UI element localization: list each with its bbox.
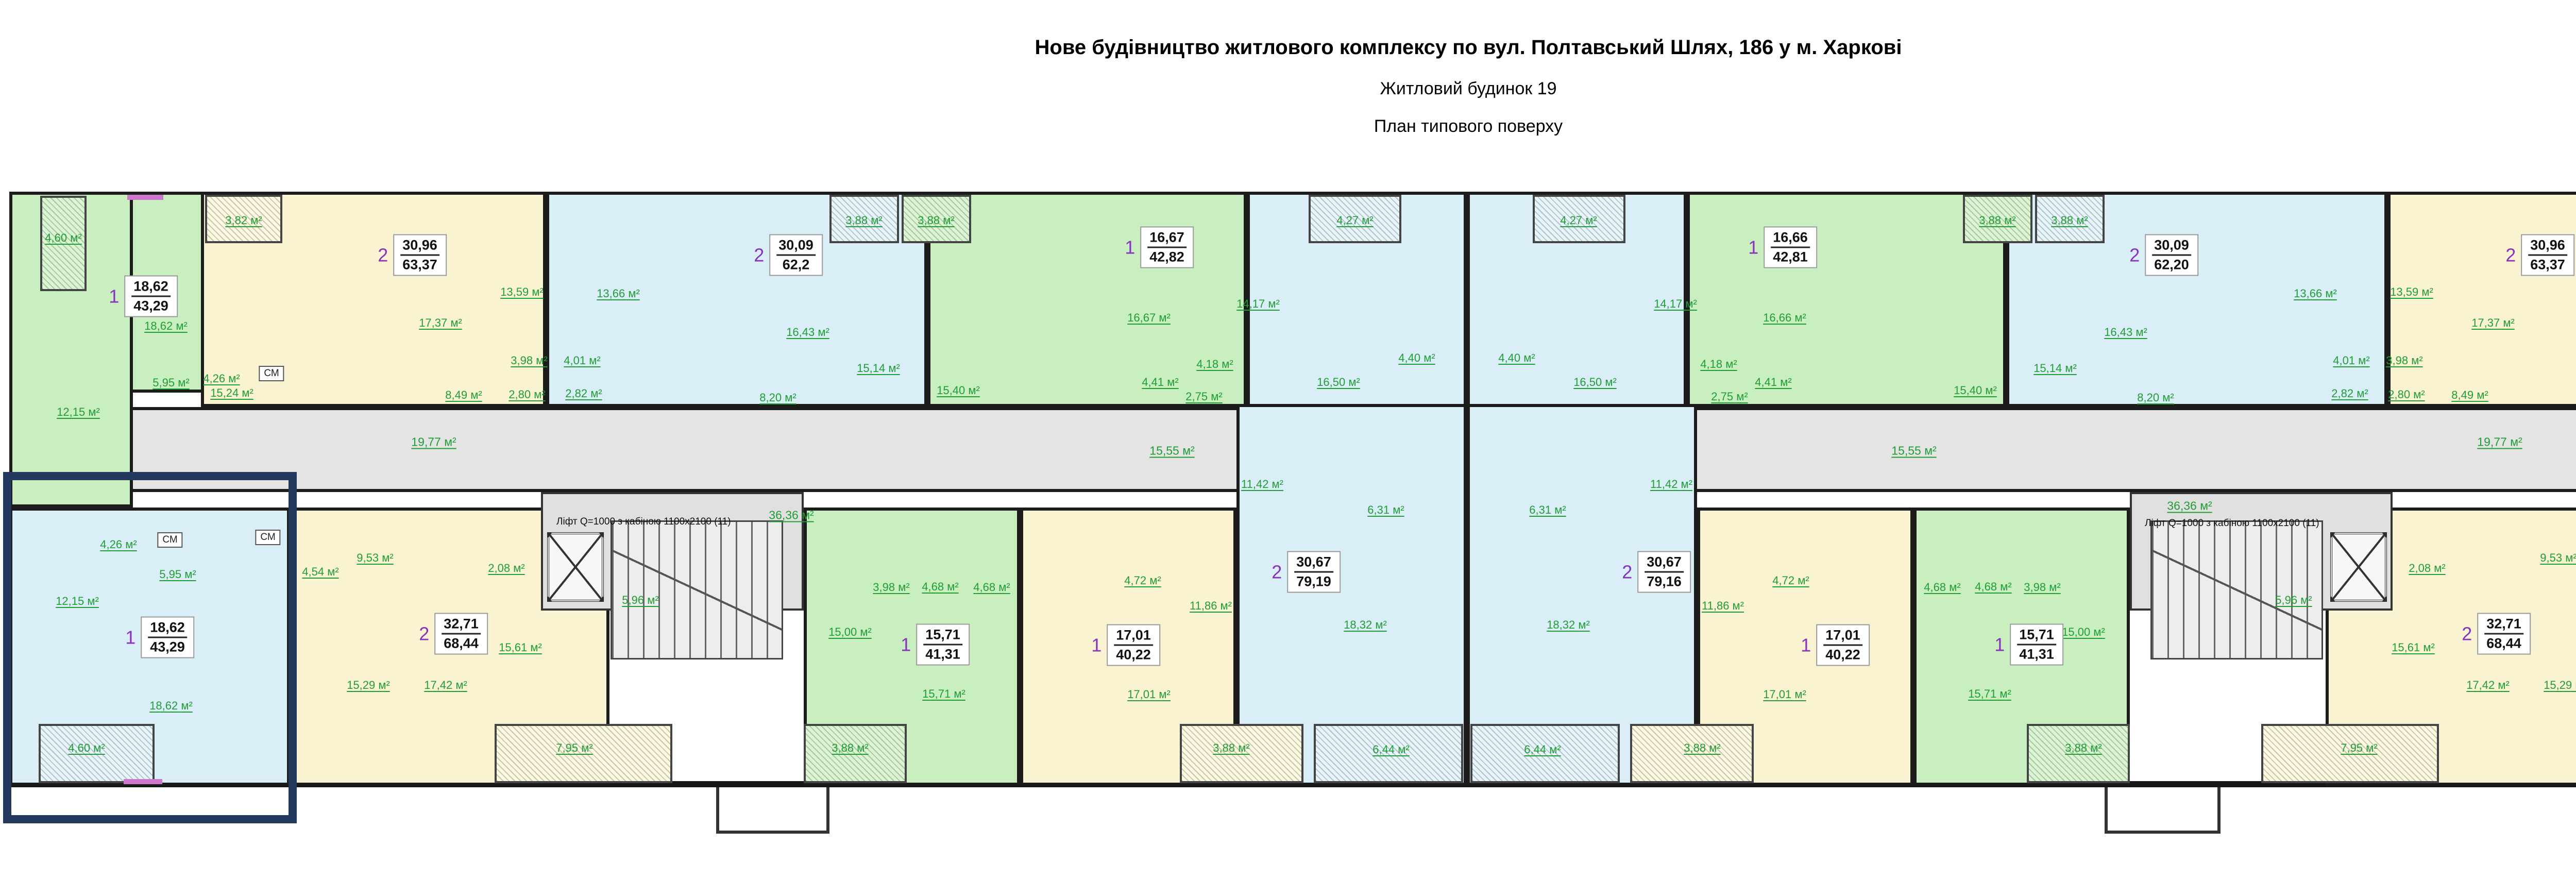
apartment-tag-bottom-left-2: 232,7168,44 <box>419 613 488 655</box>
room-area-label: 9,53 м² <box>2540 551 2576 565</box>
room-area-label: 8,20 м² <box>2137 391 2174 404</box>
room-area-label: 6,31 м² <box>1367 503 1404 517</box>
room-area-label: 17,01 м² <box>1127 688 1171 701</box>
room-area-label: 4,18 м² <box>1196 358 1233 371</box>
living-area-value: 18,62 <box>131 279 171 297</box>
corridor-area-label: 19,77 м² <box>2477 435 2522 449</box>
apartment-area-box: 16,6742,82 <box>1140 227 1194 268</box>
apartment-area-box: 30,9663,37 <box>393 234 447 276</box>
apartment-area-box: 30,6779,19 <box>1287 551 1341 593</box>
room-area-label: 15,14 м² <box>857 362 900 375</box>
apartment-number: 2 <box>754 244 764 266</box>
core-left-stairs-icon <box>611 520 783 660</box>
room-area-label: 4,40 м² <box>1498 351 1535 365</box>
room-area-label: 15,29 м² <box>347 679 390 692</box>
apartment-area-box: 18,6243,29 <box>124 276 178 317</box>
room-area-label: 17,37 м² <box>419 316 462 330</box>
apartment-number: 2 <box>2129 244 2140 266</box>
corridor <box>1697 407 2576 492</box>
apartment-number: 2 <box>2505 244 2516 266</box>
room-area-label: 9,53 м² <box>357 551 393 565</box>
total-area-value: 43,29 <box>131 297 171 314</box>
total-area-value: 41,31 <box>2017 646 2056 663</box>
total-area-value: 68,44 <box>442 635 481 652</box>
corridor-area-label: 36,36 м² <box>2167 499 2212 513</box>
apartment-area-box: 30,9663,37 <box>2521 234 2574 276</box>
living-area-value: 30,09 <box>2152 238 2191 256</box>
room-area-label: 3,88 м² <box>845 214 882 227</box>
room-area-label: 13,66 м² <box>597 287 640 300</box>
living-area-value: 16,66 <box>1771 230 1810 248</box>
room-area-label: 8,49 м² <box>2451 388 2488 402</box>
apartment-tag-bottom-right-4: 117,0140,22 <box>1801 624 1870 666</box>
room-area-label: 5,95 м² <box>152 376 189 390</box>
room-area-label: 15,24 м² <box>210 386 253 400</box>
room-area-label: 11,42 м² <box>1241 478 1283 491</box>
living-area-value: 30,67 <box>1645 554 1684 573</box>
room-area-label: 4,26 м² <box>203 372 240 385</box>
apartment-area-box: 30,0962,2 <box>769 234 823 276</box>
accent-window-0 <box>127 195 163 200</box>
total-area-value: 68,44 <box>2484 635 2523 652</box>
total-area-value: 79,16 <box>1645 573 1684 590</box>
apartment-tag-bottom-left-4: 117,0140,22 <box>1091 624 1160 666</box>
room-area-label: 4,68 м² <box>1975 580 2011 594</box>
room-area-label: 6,44 м² <box>1372 743 1409 756</box>
apartment-tag-bottom-left-3: 115,7141,31 <box>901 624 970 666</box>
room-area-label: 8,49 м² <box>445 388 482 402</box>
room-area-label: 8,20 м² <box>759 391 796 404</box>
apartment-area-box: 15,7141,31 <box>916 624 970 666</box>
room-area-label: 18,32 м² <box>1547 618 1590 632</box>
room-area-label: 3,88 м² <box>1213 741 1249 755</box>
room-area-label: 15,71 м² <box>922 687 965 701</box>
room-area-label: 4,01 м² <box>2333 354 2369 367</box>
room-area-label: 15,00 м² <box>2062 625 2105 639</box>
apartment-number: 2 <box>378 244 388 266</box>
room-area-label: 2,75 м² <box>1711 390 1748 403</box>
total-area-value: 79,19 <box>1294 573 1333 590</box>
core-right-stairs-icon <box>2150 520 2323 660</box>
room-area-label: 15,40 м² <box>937 384 980 397</box>
living-area-value: 32,71 <box>2484 616 2523 635</box>
room-area-label: 2,82 м² <box>2331 387 2368 400</box>
room-area-label: 3,88 м² <box>2051 214 2088 227</box>
total-area-value: 40,22 <box>1823 646 1862 663</box>
core-right-lift-icon <box>2330 532 2387 602</box>
closet-label: СМ <box>259 366 284 381</box>
room-area-label: 16,67 м² <box>1127 311 1171 325</box>
room-area-label: 7,95 м² <box>2341 741 2377 755</box>
floor-plan-canvas: 5,96 м²Ліфт Q=1000 з кабіною 1100х2100 (… <box>0 0 2576 896</box>
room-area-label: 6,31 м² <box>1529 503 1566 517</box>
room-area-label: 2,08 м² <box>2409 562 2445 575</box>
room-area-label: 4,54 м² <box>302 565 338 579</box>
room-area-label: 15,29 м² <box>2544 679 2576 692</box>
room-area-label: 4,72 м² <box>1124 574 1161 587</box>
apartment-number: 1 <box>1125 236 1135 258</box>
apartment-tag-top-left-4: 116,6742,82 <box>1125 227 1194 268</box>
living-area-value: 17,01 <box>1823 628 1862 646</box>
apartment-tag-top-left-end: 118,6243,29 <box>109 276 178 317</box>
room-area-label: 2,08 м² <box>488 562 524 575</box>
core-right-lobby-area-label: 5,96 м² <box>2275 594 2312 607</box>
room-area-label: 2,75 м² <box>1185 390 1222 403</box>
highlighted-apartment-box <box>3 472 297 823</box>
room-area-label: 14,17 м² <box>1654 297 1697 311</box>
room-area-label: 4,68 м² <box>922 580 958 594</box>
living-area-value: 15,71 <box>923 627 962 646</box>
apartment-tag-bottom-right-3: 115,7141,31 <box>1994 624 2063 666</box>
room-area-label: 4,68 м² <box>973 581 1010 594</box>
apartment-area-box: 30,6779,16 <box>1637 551 1691 593</box>
room-area-label: 3,88 м² <box>1979 214 2015 227</box>
living-area-value: 30,96 <box>400 238 439 256</box>
floor-plan-page: { "title": { "line1": "Нове будівництво … <box>0 0 2576 896</box>
corridor-area-label: 15,55 м² <box>1149 444 1194 458</box>
apartment-tag-top-right-4: 116,6642,81 <box>1748 227 1817 268</box>
room-area-label: 15,40 м² <box>1954 384 1997 397</box>
room-area-label: 16,50 м² <box>1573 376 1617 389</box>
room-area-label: 11,42 м² <box>1650 478 1692 491</box>
room-area-label: 7,95 м² <box>556 741 592 755</box>
room-area-label: 3,88 м² <box>832 741 868 755</box>
apartment-unit-top-left-4 <box>927 192 1247 407</box>
living-area-value: 15,71 <box>2017 627 2056 646</box>
room-area-label: 3,98 м² <box>2386 354 2422 367</box>
living-area-value: 30,96 <box>2528 238 2567 256</box>
living-area-value: 32,71 <box>442 616 481 635</box>
room-area-label: 2,82 м² <box>565 387 602 400</box>
room-area-label: 4,18 м² <box>1700 358 1737 371</box>
entrance-porch-1 <box>2105 787 2221 834</box>
apartment-number: 2 <box>419 623 429 645</box>
living-area-value: 17,01 <box>1114 628 1153 646</box>
apartment-tag-top-right-2: 230,9663,37 <box>2505 234 2574 276</box>
room-area-label: 3,88 м² <box>2065 741 2102 755</box>
total-area-value: 62,20 <box>2152 256 2191 273</box>
room-area-label: 4,40 м² <box>1398 351 1435 365</box>
total-area-value: 41,31 <box>923 646 962 663</box>
living-area-value: 30,67 <box>1294 554 1333 573</box>
room-area-label: 17,01 м² <box>1763 688 1806 701</box>
total-area-value: 62,2 <box>776 256 816 273</box>
apartment-number: 2 <box>1622 561 1632 583</box>
corridor <box>131 407 1236 492</box>
total-area-value: 63,37 <box>400 256 439 273</box>
entrance-porch-0 <box>716 787 829 834</box>
apartment-area-box: 32,7168,44 <box>434 613 488 655</box>
apartment-area-box: 32,7168,44 <box>2477 613 2531 655</box>
room-area-label: 13,59 м² <box>500 285 544 299</box>
lift-spec-label: Ліфт Q=1000 з кабіною 1100х2100 (11) <box>2145 518 2319 529</box>
room-area-label: 16,50 м² <box>1317 376 1360 389</box>
room-area-label: 6,44 м² <box>1524 743 1561 756</box>
room-area-label: 4,27 м² <box>1336 214 1373 227</box>
lift-spec-label: Ліфт Q=1000 з кабіною 1100х2100 (11) <box>556 516 731 528</box>
room-area-label: 14,17 м² <box>1236 297 1280 311</box>
living-area-value: 30,09 <box>776 238 816 256</box>
apartment-unit-top-right-2 <box>2387 192 2576 407</box>
room-area-label: 15,61 м² <box>2392 641 2435 654</box>
apartment-unit-top-right-4 <box>1687 192 2006 407</box>
room-area-label: 4,41 м² <box>1142 376 1178 389</box>
apartment-tag-bottom-right-2: 232,7168,44 <box>2462 613 2531 655</box>
room-area-label: 15,00 м² <box>828 625 872 639</box>
room-area-label: 18,32 м² <box>1344 618 1387 632</box>
room-area-label: 15,14 м² <box>2033 362 2077 375</box>
room-area-label: 2,80 м² <box>2388 388 2425 401</box>
room-area-label: 3,82 м² <box>225 214 262 227</box>
core-left-lift-icon <box>547 532 604 602</box>
apartment-number: 1 <box>1994 634 2005 655</box>
room-area-label: 13,66 м² <box>2294 287 2337 300</box>
room-area-label: 12,15 м² <box>57 405 100 419</box>
room-area-label: 18,62 м² <box>144 319 188 333</box>
total-area-value: 42,81 <box>1771 248 1810 265</box>
living-area-value: 16,67 <box>1147 230 1187 248</box>
room-area-label: 3,98 м² <box>2024 581 2060 594</box>
room-area-label: 17,37 м² <box>2471 316 2515 330</box>
room-area-label: 11,86 м² <box>1702 599 1744 613</box>
apartment-tag-top-right-3: 230,0962,20 <box>2129 234 2198 276</box>
apartment-number: 2 <box>2462 623 2472 645</box>
total-area-value: 42,82 <box>1147 248 1187 265</box>
room-area-label: 13,59 м² <box>2390 285 2433 299</box>
total-area-value: 63,37 <box>2528 256 2567 273</box>
total-area-value: 40,22 <box>1114 646 1153 663</box>
room-area-label: 4,01 м² <box>564 354 600 367</box>
apartment-tag-center-left-corner: 230,6779,19 <box>1272 551 1341 593</box>
room-area-label: 4,68 м² <box>1924 581 1960 594</box>
apartment-area-box: 16,6642,81 <box>1764 227 1817 268</box>
room-area-label: 4,27 м² <box>1560 214 1597 227</box>
room-area-label: 16,66 м² <box>1763 311 1806 325</box>
room-area-label: 17,42 м² <box>2466 679 2510 692</box>
apartment-number: 2 <box>1272 561 1282 583</box>
room-area-label: 17,42 м² <box>424 679 467 692</box>
room-area-label: 4,41 м² <box>1755 376 1791 389</box>
room-area-label: 4,60 м² <box>45 231 81 245</box>
room-area-label: 15,61 м² <box>499 641 542 654</box>
core-left-lobby-area-label: 5,96 м² <box>622 594 658 607</box>
apartment-number: 1 <box>1801 634 1811 656</box>
room-area-label: 15,71 м² <box>1968 687 2011 701</box>
room-area-label: 16,43 м² <box>786 326 829 339</box>
apartment-area-box: 17,0140,22 <box>1816 624 1870 666</box>
apartment-area-box: 30,0962,20 <box>2145 234 2198 276</box>
apartment-area-box: 15,7141,31 <box>2010 624 2063 666</box>
apartment-number: 1 <box>109 285 119 307</box>
corridor-area-label: 36,36 м² <box>769 509 814 522</box>
room-area-label: 3,98 м² <box>873 581 909 594</box>
corridor-area-label: 19,77 м² <box>411 435 456 449</box>
apartment-number: 1 <box>1091 634 1101 656</box>
room-area-label: 4,72 м² <box>1772 574 1809 587</box>
apartment-tag-center-right-corner: 230,6779,16 <box>1622 551 1691 593</box>
apartment-number: 1 <box>1748 236 1758 258</box>
room-area-label: 16,43 м² <box>2104 326 2147 339</box>
room-area-label: 2,80 м² <box>509 388 545 401</box>
apartment-number: 1 <box>901 634 911 655</box>
corridor-area-label: 15,55 м² <box>1891 444 1936 458</box>
room-area-label: 3,88 м² <box>918 214 954 227</box>
apartment-tag-top-left-2: 230,9663,37 <box>378 234 447 276</box>
room-area-label: 3,88 м² <box>1684 741 1720 755</box>
room-area-label: 11,86 м² <box>1190 599 1232 613</box>
room-area-label: 3,98 м² <box>511 354 547 367</box>
apartment-area-box: 17,0140,22 <box>1107 624 1160 666</box>
apartment-tag-top-left-3: 230,0962,2 <box>754 234 823 276</box>
